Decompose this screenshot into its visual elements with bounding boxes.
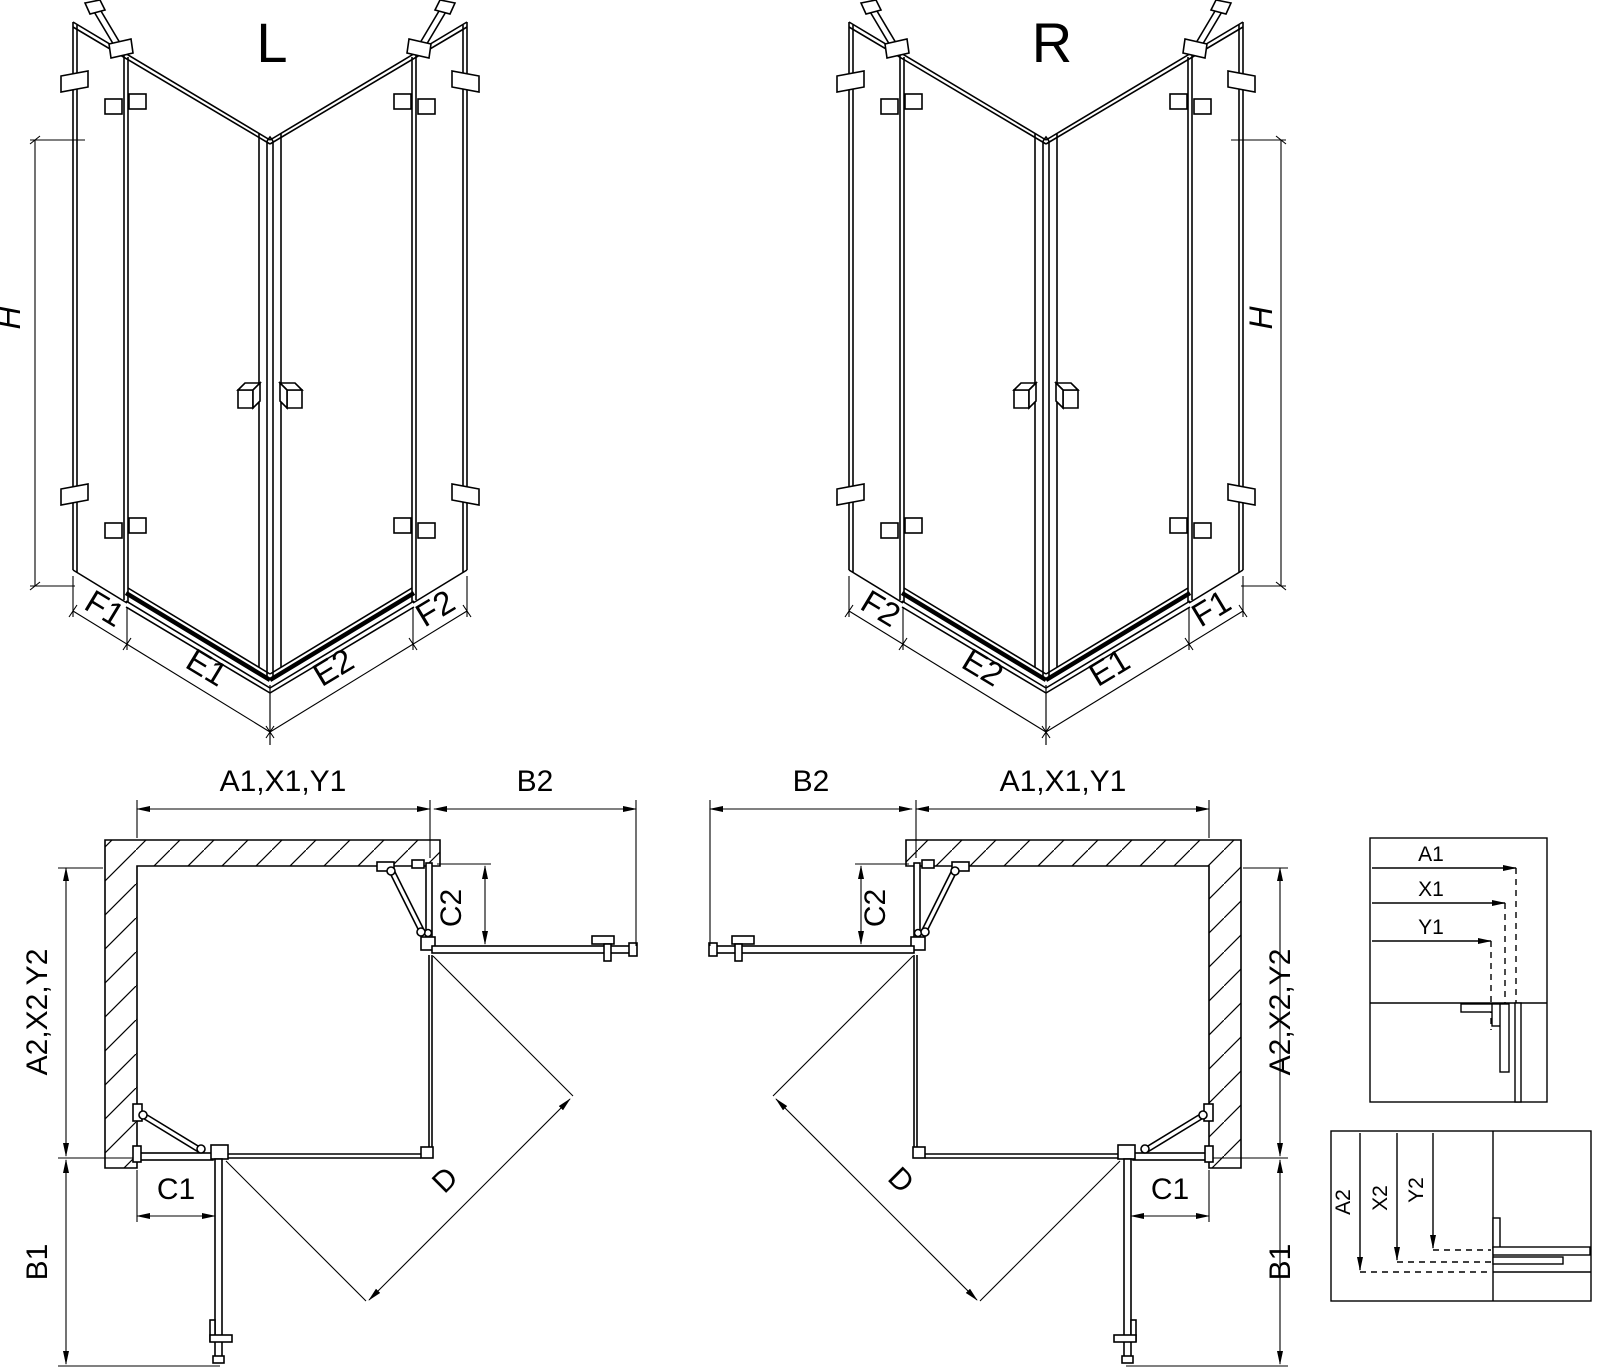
dim-label-fixed-left-l: F1 — [79, 582, 131, 634]
dim-label-fixed-front-right-plan: C1 — [1151, 1173, 1189, 1206]
shower-enclosure-technical-drawing: L H F1 E1 E2 F2 R H F2 E2 E1 F1 A1,X1,Y1… — [0, 0, 1600, 1371]
dim-label-door-right-r: E1 — [1082, 641, 1136, 694]
detail-depth-label-y2: Y2 — [1405, 1177, 1428, 1203]
dim-label-diagonal-left-plan: D — [426, 1161, 465, 1200]
dim-label-diagonal-right-plan: D — [881, 1161, 920, 1200]
drawing-canvas: L H F1 E1 E2 F2 R H F2 E2 E1 F1 A1,X1,Y1… — [0, 0, 1600, 1371]
detail-width-label-x1: X1 — [1418, 878, 1444, 901]
dim-label-door-open-width-left-plan: B2 — [517, 765, 554, 798]
dim-label-height-right: H — [1243, 306, 1279, 330]
dim-label-fixed-right-l: F2 — [409, 582, 461, 634]
dim-label-door-left-r: E2 — [956, 641, 1010, 694]
wall-section-left-plan — [105, 840, 440, 1168]
dim-label-width-total-left-plan: A1,X1,Y1 — [220, 765, 347, 798]
detail-width-label-y1: Y1 — [1418, 916, 1444, 939]
perspective-view-left: L H F1 E1 E2 F2 — [0, 0, 479, 745]
dim-label-fixed-front-left-plan: C1 — [157, 1173, 195, 1206]
dim-label-fixed-left-r: F2 — [855, 582, 907, 634]
detail-width-label-a1: A1 — [1418, 843, 1444, 866]
detail-depth-label-a2: A2 — [1332, 1189, 1355, 1215]
perspective-view-right: R H F2 E2 E1 F1 — [837, 0, 1286, 745]
detail-box-depth-adjustment: A2 X2 Y2 — [1331, 1131, 1591, 1301]
dim-label-door-open-depth-left-plan: B1 — [21, 1244, 54, 1281]
dim-label-depth-total-left-plan: A2,X2,Y2 — [21, 949, 54, 1076]
dim-label-height-left: H — [0, 306, 27, 330]
dim-label-fixed-right-r: F1 — [1185, 582, 1237, 634]
detail-depth-label-x2: X2 — [1369, 1185, 1392, 1211]
variant-label-left: L — [256, 11, 287, 74]
dim-label-door-left-l: E1 — [180, 641, 234, 694]
variant-label-right: R — [1032, 11, 1072, 74]
plan-view-left: A1,X1,Y1 B2 C2 A2,X2,Y2 C1 B1 D — [21, 765, 637, 1366]
dim-label-door-open-width-right-plan: B2 — [793, 765, 830, 798]
wall-section-right-plan — [906, 840, 1241, 1168]
dim-label-depth-total-right-plan: A2,X2,Y2 — [1264, 949, 1297, 1076]
dim-label-fixed-side-left-plan: C2 — [435, 889, 468, 927]
plan-view-right: A1,X1,Y1 B2 C2 A2,X2,Y2 C1 B1 D — [709, 765, 1297, 1366]
dim-label-door-open-depth-right-plan: B1 — [1264, 1244, 1297, 1281]
dim-label-width-total-right-plan: A1,X1,Y1 — [1000, 765, 1127, 798]
dim-label-door-right-l: E2 — [306, 641, 360, 694]
detail-box-width-adjustment: A1 X1 Y1 — [1370, 838, 1547, 1102]
dim-label-fixed-side-right-plan: C2 — [859, 889, 892, 927]
